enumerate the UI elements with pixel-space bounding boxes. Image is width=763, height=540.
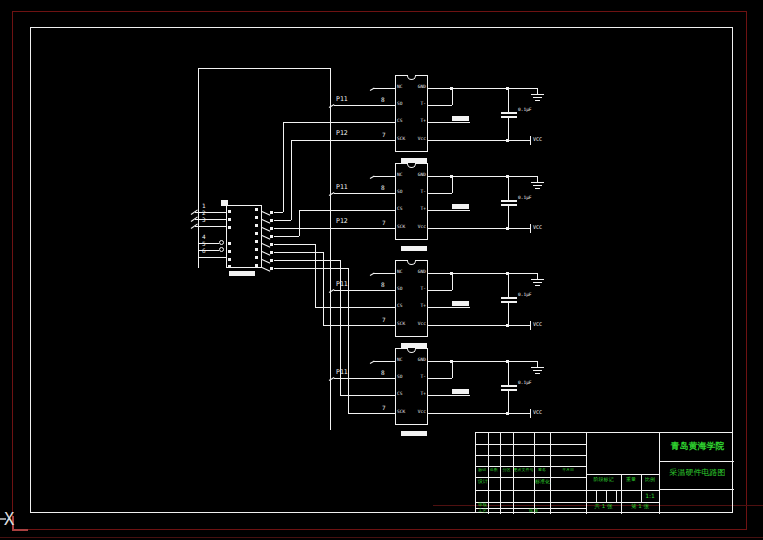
connector-pin1-tab xyxy=(221,200,228,206)
chip-label-bar xyxy=(401,246,427,251)
ground-symbol xyxy=(531,279,544,280)
pin-number: 8 xyxy=(381,185,385,191)
vcc-symbol xyxy=(530,136,531,145)
vcc-wire xyxy=(428,325,530,326)
capacitor xyxy=(501,385,517,387)
capacitor xyxy=(501,301,517,303)
pin-pad xyxy=(270,251,273,254)
review-label: 审核 xyxy=(478,503,487,508)
pin-number: 7 xyxy=(382,220,386,226)
thermocouple-label-bar xyxy=(452,389,469,394)
ground-symbol xyxy=(535,100,540,101)
junction-node xyxy=(506,324,509,327)
so-wire xyxy=(334,378,395,379)
title-block-grid xyxy=(476,444,586,445)
tplus-wire xyxy=(428,210,470,211)
ground-symbol xyxy=(533,185,542,186)
nc-wire xyxy=(373,88,395,89)
net-label-p11: P11 xyxy=(336,281,348,288)
sheet-total: 共 1 张 xyxy=(586,504,621,510)
pin-pad xyxy=(255,240,258,243)
bus-wire xyxy=(195,219,226,220)
bus-wire xyxy=(291,140,292,220)
sheet-number: 第 1 张 xyxy=(621,504,659,510)
pin-pad xyxy=(255,248,258,251)
pin-number: 8 xyxy=(381,282,385,288)
cap-lead xyxy=(508,274,509,297)
chip-pin-name: NC xyxy=(397,173,402,178)
chip-pin-name: NC xyxy=(397,270,402,275)
gnd-wire xyxy=(428,176,537,177)
nc-wire xyxy=(373,176,395,177)
pin-pad xyxy=(255,264,258,267)
tplus-wire xyxy=(428,122,470,123)
connector-label-bar xyxy=(229,271,255,276)
pin-pad xyxy=(255,208,258,211)
connector-wire-number: 6 xyxy=(202,248,206,254)
bus-wire xyxy=(315,307,395,308)
ground-symbol xyxy=(531,367,544,368)
bus-wire xyxy=(323,252,324,325)
title-block: 标记处数分区更改文件号签名年月日设计标准化审核工艺批准阶段标记重量比例1:1共 … xyxy=(475,432,733,513)
pin-number: 8 xyxy=(381,370,385,376)
vcc-wire xyxy=(428,413,530,414)
title-block-grid xyxy=(596,490,597,502)
title-block-grid xyxy=(659,461,734,462)
design-label: 设计 xyxy=(478,479,488,484)
cap-lead xyxy=(508,89,509,112)
capacitor xyxy=(501,389,517,391)
bus-wire xyxy=(195,212,226,213)
net-label-p12: P12 xyxy=(336,218,348,225)
bus-wire xyxy=(198,257,226,258)
capacitor-value: 0.1μF xyxy=(518,293,532,298)
title-block-grid xyxy=(659,433,660,514)
pin-pad xyxy=(228,210,231,213)
chip-pin-name: Vcc xyxy=(408,225,426,230)
bus-wire xyxy=(274,228,395,229)
bus-wire xyxy=(330,68,331,430)
cap-lead xyxy=(508,303,509,325)
chip-pin-name: SO xyxy=(397,102,402,107)
weight-label: 重量 xyxy=(621,477,641,482)
capacitor-value: 0.1μF xyxy=(518,108,532,113)
chip-pin-name: SO xyxy=(397,190,402,195)
connector-wire-number: 3 xyxy=(202,217,206,223)
bus-wire xyxy=(274,212,283,213)
revision-header: 签名 xyxy=(534,468,550,472)
bus-wire xyxy=(198,68,199,268)
ground-symbol xyxy=(531,94,544,95)
net-label-p11: P11 xyxy=(336,184,348,191)
title-block-grid xyxy=(476,455,586,456)
vcc-label: VCC xyxy=(533,322,542,327)
pin-pad xyxy=(270,259,273,262)
bus-wire xyxy=(274,220,291,221)
chip-pin-name: CS xyxy=(397,304,402,309)
bus-wire xyxy=(348,413,395,414)
chip-label-bar xyxy=(401,431,427,436)
paper-red-corner-h xyxy=(12,529,28,531)
chip-pin-name: Vcc xyxy=(408,410,426,415)
title-block-grid xyxy=(659,489,734,490)
scale-label: 比例 xyxy=(641,477,659,482)
cad-viewport[interactable]: 123456NCGNDSOT-CST+SCKVccP118P127VCC0.1μ… xyxy=(0,0,763,540)
chip-pin-name: SCK xyxy=(397,322,405,327)
chip-pin-name: SCK xyxy=(397,137,405,142)
pin-pad xyxy=(270,219,273,222)
approve-label: 批准 xyxy=(529,509,538,514)
junction-node xyxy=(506,272,509,275)
title-block-grid xyxy=(476,490,586,491)
pin-number: 8 xyxy=(381,97,385,103)
nc-wire xyxy=(373,273,395,274)
pin-pad xyxy=(270,267,273,270)
ground-symbol xyxy=(533,97,542,98)
bus-wire xyxy=(299,210,300,236)
gnd-jog xyxy=(452,88,453,105)
chip-pin-name: T- xyxy=(408,190,426,195)
school-name: 青岛黄海学院 xyxy=(661,442,734,451)
junction-node xyxy=(506,87,509,90)
ground-symbol xyxy=(531,182,544,183)
title-block-grid xyxy=(606,490,607,502)
so-wire xyxy=(334,290,395,291)
vcc-wire xyxy=(428,140,530,141)
net-label-p11: P11 xyxy=(336,96,348,103)
title-block-grid xyxy=(586,490,659,491)
cap-lead xyxy=(508,362,509,385)
pin-pad xyxy=(228,218,231,221)
chip-pin-name: CS xyxy=(397,207,402,212)
so-wire xyxy=(334,193,395,194)
bus-wire xyxy=(274,268,348,269)
chip-pin-name: SO xyxy=(397,287,402,292)
pin-pad xyxy=(228,250,231,253)
bus-wire xyxy=(198,68,330,69)
capacitor-value: 0.1μF xyxy=(518,196,532,201)
chip-pin-name: T+ xyxy=(408,207,426,212)
vcc-label: VCC xyxy=(533,225,542,230)
tplus-wire xyxy=(428,307,470,308)
chip-pin-name: T+ xyxy=(408,304,426,309)
chip-pin-name: NC xyxy=(397,85,402,90)
paper-red-line-bottom xyxy=(0,537,763,538)
revision-header: 标记 xyxy=(476,468,488,472)
chip-pin-name: GND xyxy=(408,85,426,90)
net-label-p12: P12 xyxy=(336,130,348,137)
pin-pad xyxy=(228,226,231,229)
bus-wire xyxy=(315,244,316,307)
chip-pin-name: SCK xyxy=(397,225,405,230)
pin-pad xyxy=(270,211,273,214)
junction-node xyxy=(506,360,509,363)
bus-wire xyxy=(283,122,284,212)
pin-pad xyxy=(255,216,258,219)
thermocouple-label-bar xyxy=(452,301,469,306)
junction-node xyxy=(506,139,509,142)
stage-mark-label: 阶段标记 xyxy=(586,477,621,482)
vcc-label: VCC xyxy=(533,137,542,142)
tplus-wire xyxy=(428,395,470,396)
net-label-p11: P11 xyxy=(336,369,348,376)
revision-header: 分区 xyxy=(500,468,513,472)
bus-wire xyxy=(291,140,395,141)
bus-wire xyxy=(274,236,299,237)
nc-wire xyxy=(373,361,395,362)
pin-number: 7 xyxy=(382,132,386,138)
junction-node xyxy=(506,175,509,178)
capacitor xyxy=(501,297,517,299)
ucs-icon: X xyxy=(4,511,14,528)
revision-header: 年月日 xyxy=(550,468,586,472)
junction-node xyxy=(506,412,509,415)
chip-pin-name: Vcc xyxy=(408,322,426,327)
capacitor xyxy=(501,204,517,206)
chip-pin-name: SCK xyxy=(397,410,405,415)
so-wire xyxy=(334,105,395,106)
bus-wire xyxy=(283,122,395,123)
gnd-jog xyxy=(452,176,453,193)
pin-pad xyxy=(255,256,258,259)
chip-pin-name: CS xyxy=(397,392,402,397)
ground-symbol xyxy=(533,370,542,371)
standardization-label: 标准化 xyxy=(535,479,550,484)
pin-pad xyxy=(255,224,258,227)
chip-pin-name: GND xyxy=(408,270,426,275)
bus-wire xyxy=(299,210,395,211)
chip-pin-name: T+ xyxy=(408,392,426,397)
chip-pin-name: T+ xyxy=(408,119,426,124)
cap-lead xyxy=(508,391,509,413)
bus-wire xyxy=(323,325,395,326)
bus-wire xyxy=(274,244,315,245)
pin-pad xyxy=(270,227,273,230)
gnd-wire xyxy=(428,88,537,89)
chip-pin-name: CS xyxy=(397,119,402,124)
ground-symbol xyxy=(535,285,540,286)
tminus-wire xyxy=(428,378,452,379)
chip-pin-name: T- xyxy=(408,287,426,292)
capacitor xyxy=(501,200,517,202)
pin-number: 7 xyxy=(382,317,386,323)
chip-pin-name: T- xyxy=(408,102,426,107)
chip-pin-name: SO xyxy=(397,375,402,380)
vcc-symbol xyxy=(530,224,531,233)
ground-symbol xyxy=(533,282,542,283)
gnd-jog xyxy=(452,273,453,290)
open-terminal xyxy=(219,247,224,252)
vcc-symbol xyxy=(530,409,531,418)
pin-pad xyxy=(228,265,231,268)
bus-wire xyxy=(195,226,226,227)
cap-lead xyxy=(508,206,509,228)
ground-symbol xyxy=(535,188,540,189)
pin-pad xyxy=(228,258,231,261)
tminus-wire xyxy=(428,193,452,194)
vcc-symbol xyxy=(530,321,531,330)
scale-value: 1:1 xyxy=(641,493,659,499)
cap-lead xyxy=(508,177,509,200)
chip-pin-name: GND xyxy=(408,358,426,363)
thermocouple-label-bar xyxy=(452,204,469,209)
chip-pin-name: NC xyxy=(397,358,402,363)
process-label: 工艺 xyxy=(478,509,487,514)
capacitor xyxy=(501,112,517,114)
capacitor-value: 0.1μF xyxy=(518,381,532,386)
revision-header: 处数 xyxy=(488,468,500,472)
open-terminal xyxy=(219,240,224,245)
chip-pin-name: GND xyxy=(408,173,426,178)
revision-header: 更改文件号 xyxy=(513,468,534,472)
tminus-wire xyxy=(428,105,452,106)
junction-node xyxy=(506,227,509,230)
gnd-jog xyxy=(452,361,453,378)
pin-number: 7 xyxy=(382,405,386,411)
tminus-wire xyxy=(428,290,452,291)
title-block-grid xyxy=(476,477,586,478)
gnd-wire xyxy=(428,273,537,274)
chip-pin-name: T- xyxy=(408,375,426,380)
pin-pad xyxy=(270,243,273,246)
title-block-grid xyxy=(586,474,659,475)
vcc-label: VCC xyxy=(533,410,542,415)
cap-lead xyxy=(508,118,509,140)
chip-pin-name: Vcc xyxy=(408,137,426,142)
pin-pad xyxy=(228,242,231,245)
capacitor xyxy=(501,116,517,118)
drawing-title: 采温硬件电路图 xyxy=(661,469,734,477)
gnd-wire xyxy=(428,361,537,362)
title-block-grid xyxy=(616,490,617,502)
vcc-wire xyxy=(428,228,530,229)
pin-pad xyxy=(270,235,273,238)
ground-symbol xyxy=(535,373,540,374)
pin-pad xyxy=(255,232,258,235)
thermocouple-label-bar xyxy=(452,116,469,121)
